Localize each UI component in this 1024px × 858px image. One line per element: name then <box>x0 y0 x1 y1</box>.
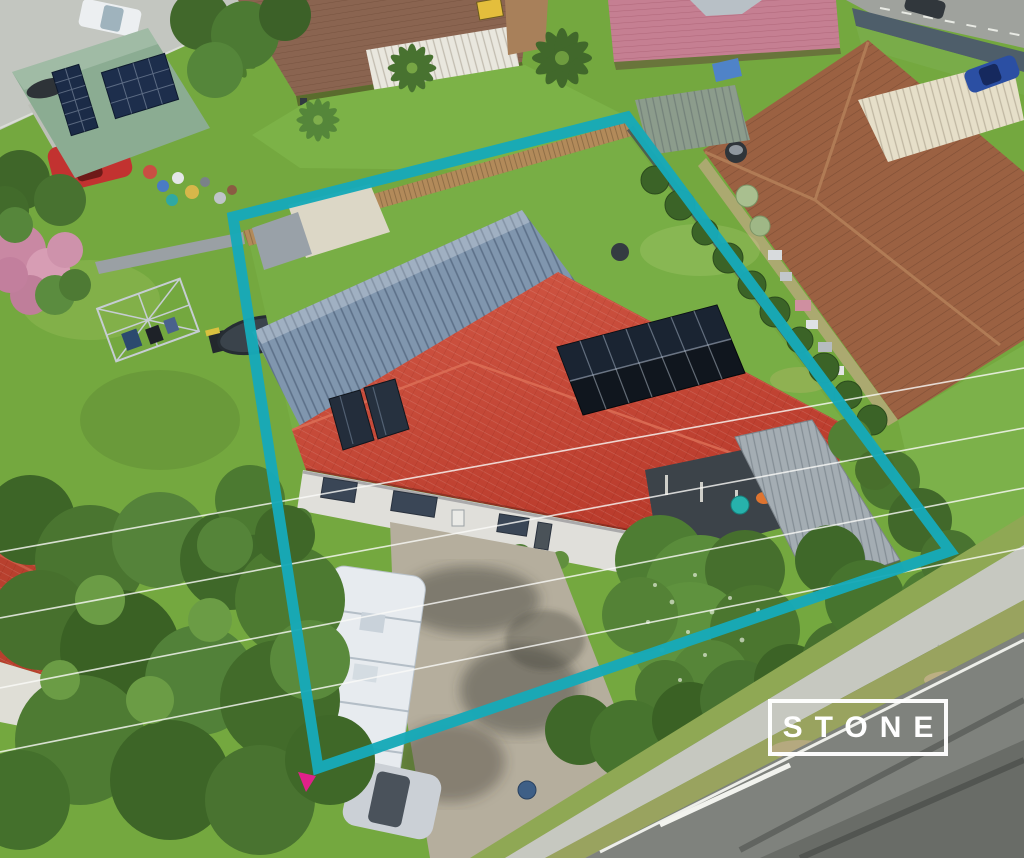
satellite-dish-icon <box>611 243 629 261</box>
stone-watermark: STONE <box>768 699 948 756</box>
stone-watermark-label: STONE <box>771 713 946 743</box>
water-tank <box>750 216 770 236</box>
wheelie-bin <box>452 510 464 526</box>
water-tank <box>736 185 758 207</box>
teal-pot <box>731 496 749 514</box>
yellow-shed <box>477 0 504 20</box>
blue-barrel <box>518 781 536 799</box>
aerial-photo: STONE <box>0 0 1024 858</box>
